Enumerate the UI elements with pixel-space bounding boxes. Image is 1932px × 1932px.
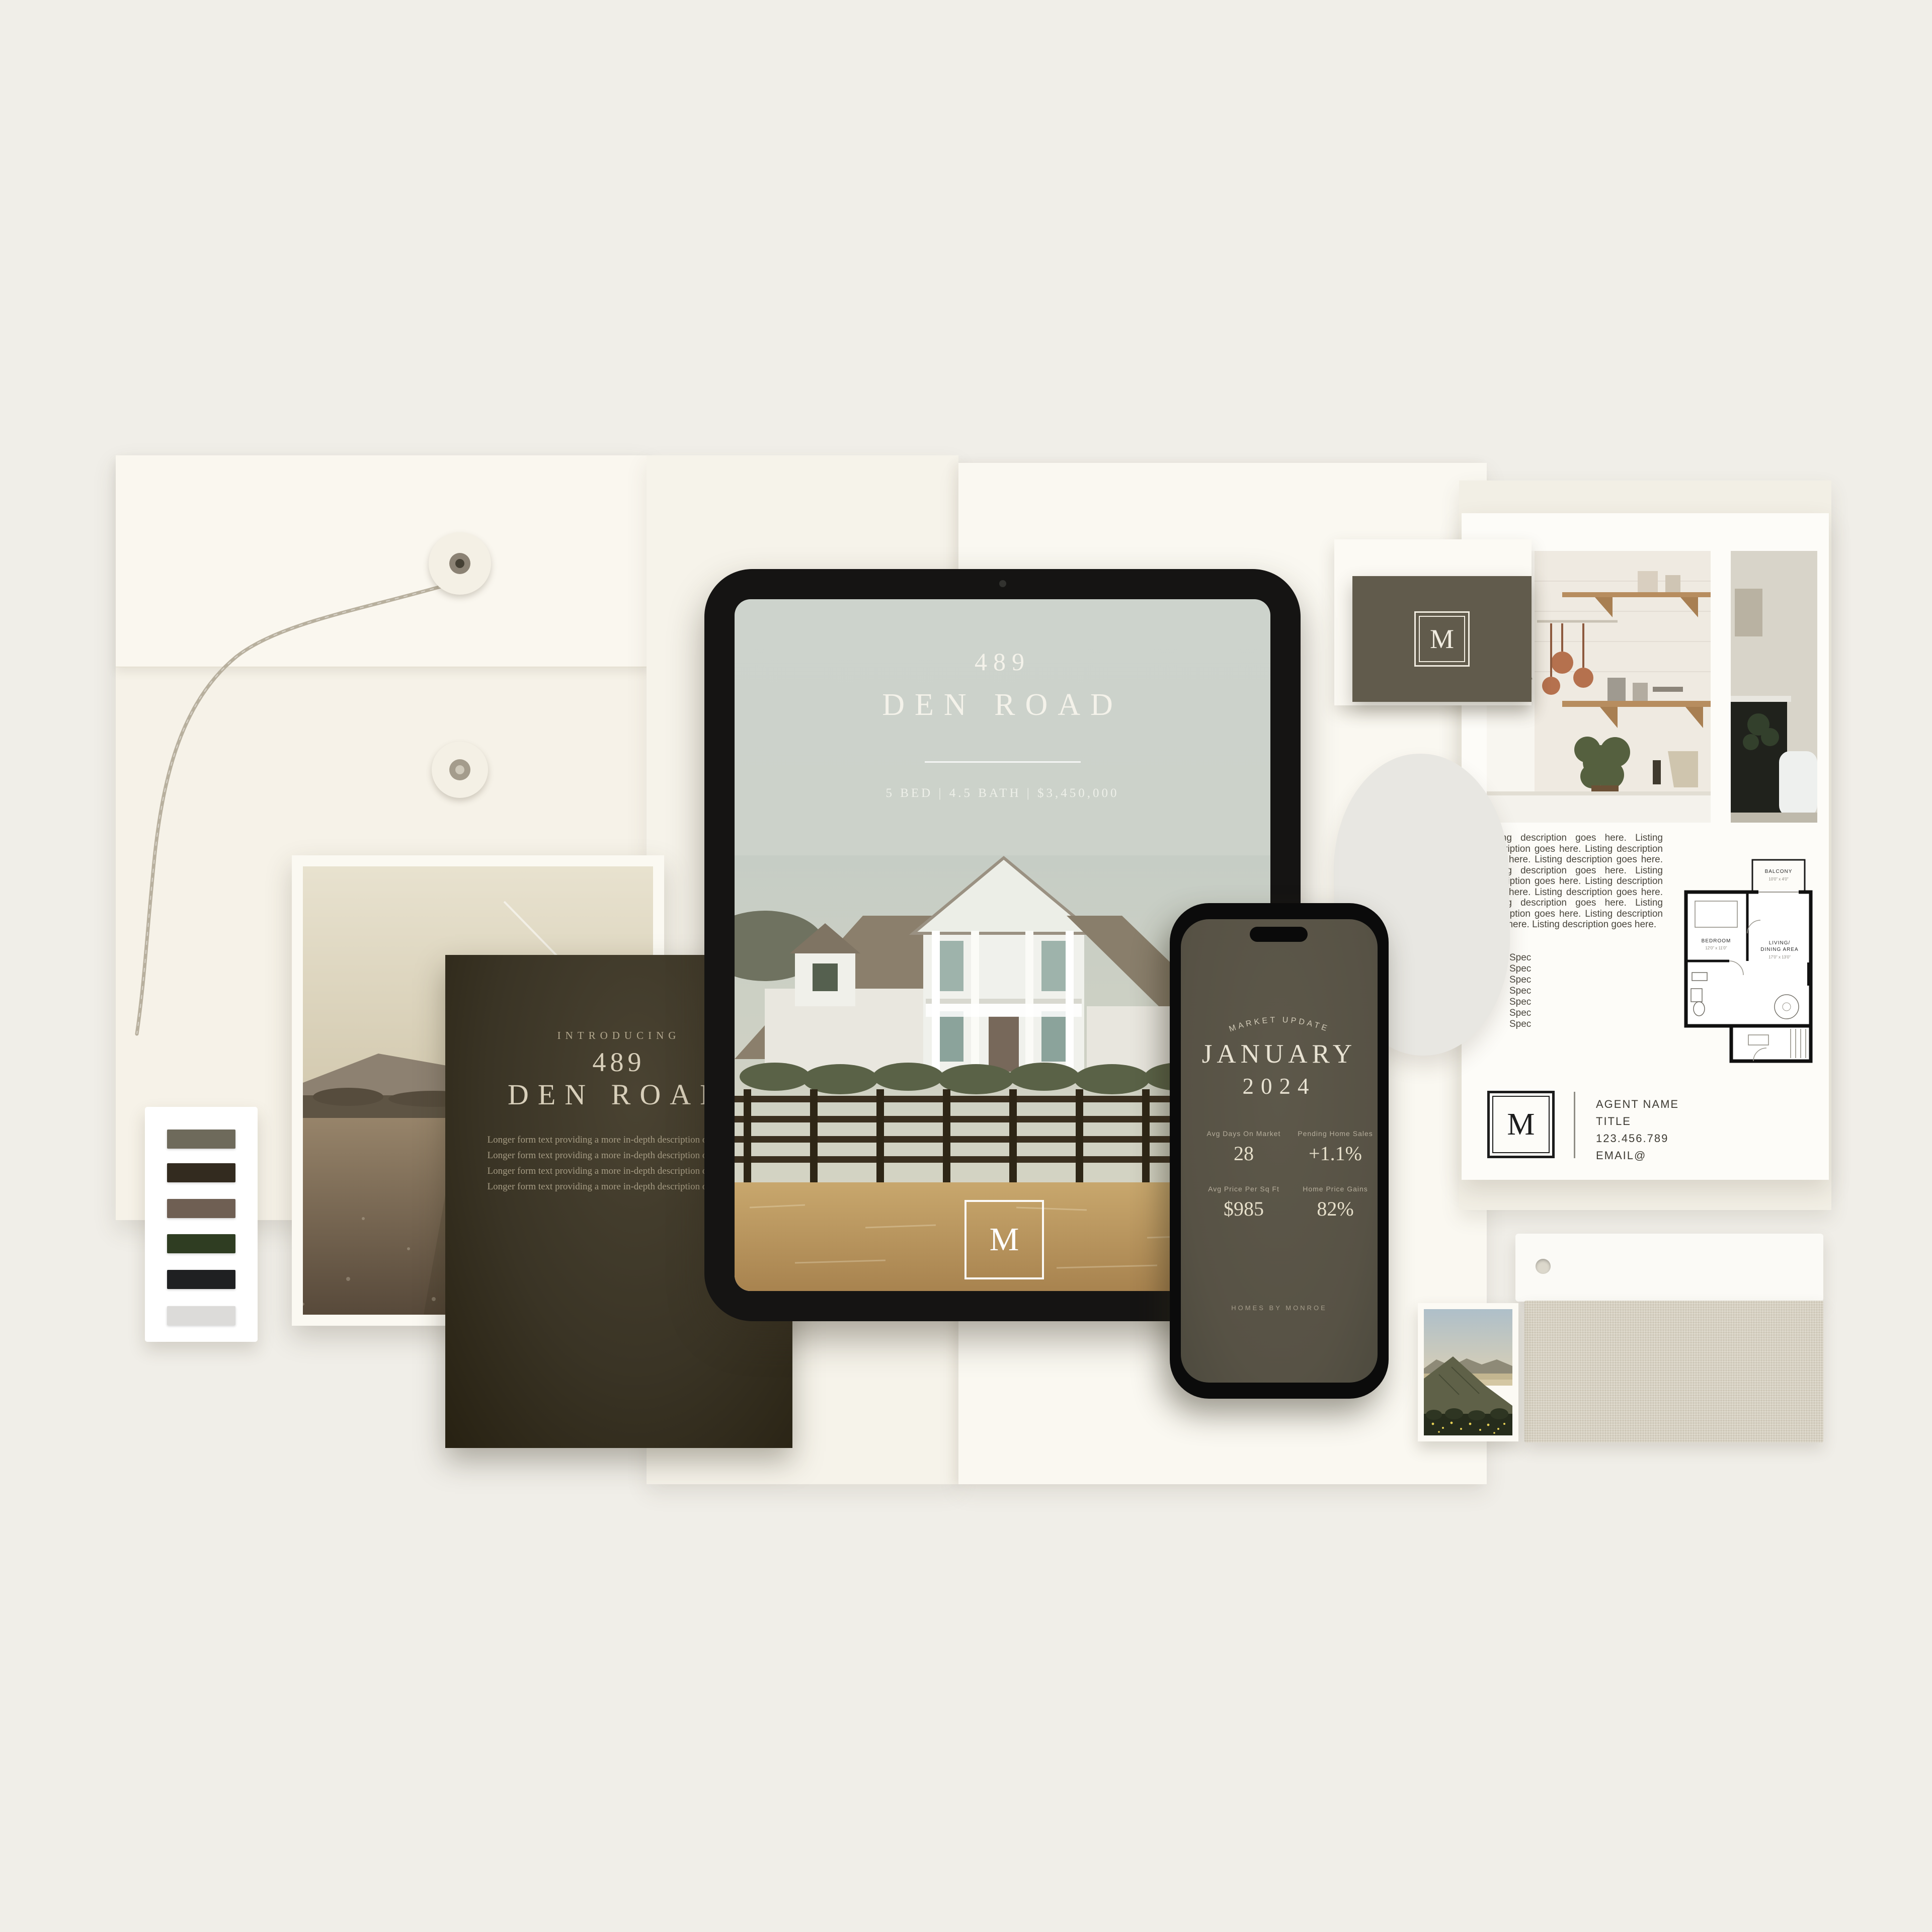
floorplan-living-dims: 17'0" x 13'0" [1768, 955, 1791, 959]
stat-price-per-sqft: Avg Price Per Sq Ft $985 [1196, 1185, 1292, 1221]
stat-label: Pending Home Sales [1287, 1130, 1378, 1138]
agent-contact-block: AGENT NAME TITLE 123.456.789 EMAIL@ [1596, 1096, 1679, 1164]
fabric-swatch-hole-icon [1536, 1259, 1551, 1274]
spec-item: Spec [1509, 1019, 1531, 1030]
business-card-monogram-letter: M [1430, 623, 1454, 655]
tablet-camera-icon [999, 580, 1006, 587]
tablet-monogram-frame: M [964, 1200, 1044, 1279]
stat-days-on-market: Avg Days On Market 28 [1196, 1130, 1292, 1165]
spec-item: Spec [1509, 975, 1531, 986]
phone-screen: MARKET UPDATE JANUARY 2024 Avg Days On M… [1181, 919, 1378, 1383]
palette-swatch-forest-green [167, 1234, 235, 1253]
floorplan-balcony-label: BALCONY [1765, 869, 1793, 874]
svg-text:MARKET UPDATE: MARKET UPDATE [1228, 1016, 1331, 1034]
palette-swatch-taupe [167, 1199, 235, 1218]
tablet-address-street: DEN ROAD [735, 687, 1270, 723]
phone-device: MARKET UPDATE JANUARY 2024 Avg Days On M… [1170, 903, 1389, 1399]
stat-value: +1.1% [1287, 1142, 1378, 1165]
fabric-swatch-header [1515, 1234, 1823, 1302]
floorplan-living-label-2: DINING AREA [1760, 947, 1798, 952]
stat-label: Avg Days On Market [1196, 1130, 1292, 1138]
agent-monogram-frame: M [1487, 1091, 1555, 1158]
spec-item: Spec [1509, 963, 1531, 975]
phone-footer-text: HOMES BY MONROE [1181, 1304, 1378, 1312]
floorplan-balcony-dims: 10'0" x 4'0" [1768, 877, 1789, 881]
tablet-monogram-letter: M [990, 1221, 1019, 1259]
stat-home-price-gains: Home Price Gains 82% [1287, 1185, 1378, 1221]
tablet-divider [925, 761, 1081, 763]
living-room-photo [1731, 551, 1817, 823]
floorplan-bedroom-label: BEDROOM [1702, 938, 1731, 944]
phone-year: 2024 [1181, 1073, 1378, 1099]
stat-value: 82% [1287, 1197, 1378, 1221]
agent-title: TITLE [1596, 1113, 1679, 1130]
agent-phone: 123.456.789 [1596, 1130, 1679, 1147]
flyer-spec-list: Spec Spec Spec Spec Spec Spec Spec [1509, 952, 1531, 1030]
agent-email: EMAIL@ [1596, 1147, 1679, 1164]
fabric-swatch-linen [1524, 1301, 1823, 1442]
envelope-button-icon [429, 532, 491, 595]
palette-swatch-black [167, 1270, 235, 1289]
palette-swatch-dark-brown [167, 1163, 235, 1182]
agent-monogram-letter: M [1507, 1107, 1535, 1143]
spec-item: Spec [1509, 952, 1531, 963]
spec-item: Spec [1509, 1008, 1531, 1019]
stat-label: Avg Price Per Sq Ft [1196, 1185, 1292, 1193]
floorplan-bedroom-dims: 12'0" x 11'0" [1705, 946, 1727, 950]
tablet-address-number: 489 [735, 647, 1270, 676]
agent-divider [1574, 1092, 1575, 1158]
envelope-button-icon [432, 742, 488, 798]
stat-value: $985 [1196, 1197, 1292, 1221]
floor-plan: BALCONY 10'0" x 4'0" BEDROOM 12'0" x 11'… [1683, 858, 1814, 1067]
business-card-dark: M [1352, 576, 1532, 702]
agent-name: AGENT NAME [1596, 1096, 1679, 1113]
stat-pending-home-sales: Pending Home Sales +1.1% [1287, 1130, 1378, 1165]
palette-swatch-olive [167, 1130, 235, 1149]
stat-label: Home Price Gains [1287, 1185, 1378, 1193]
phone-dynamic-island [1250, 927, 1308, 942]
phone-month: JANUARY [1181, 1039, 1378, 1069]
moodboard-canvas: { "palette": { "colors": ["#6e6a5b", "#3… [0, 0, 1932, 1932]
flyer-description: Listing description goes here. Listing d… [1484, 833, 1663, 942]
floorplan-living-label-1: LIVING/ [1769, 940, 1791, 946]
palette-swatch-light-gray [167, 1306, 235, 1325]
color-palette-card [145, 1107, 258, 1342]
spec-item: Spec [1509, 986, 1531, 997]
tablet-listing-specs: 5 BED | 4.5 BATH | $3,450,000 [735, 786, 1270, 800]
phone-eyebrow-text: MARKET UPDATE [1228, 1016, 1331, 1034]
spec-item: Spec [1509, 997, 1531, 1008]
business-card-monogram-frame: M [1414, 611, 1470, 667]
mountain-landscape-photo [1418, 1303, 1518, 1441]
stat-value: 28 [1196, 1142, 1292, 1165]
